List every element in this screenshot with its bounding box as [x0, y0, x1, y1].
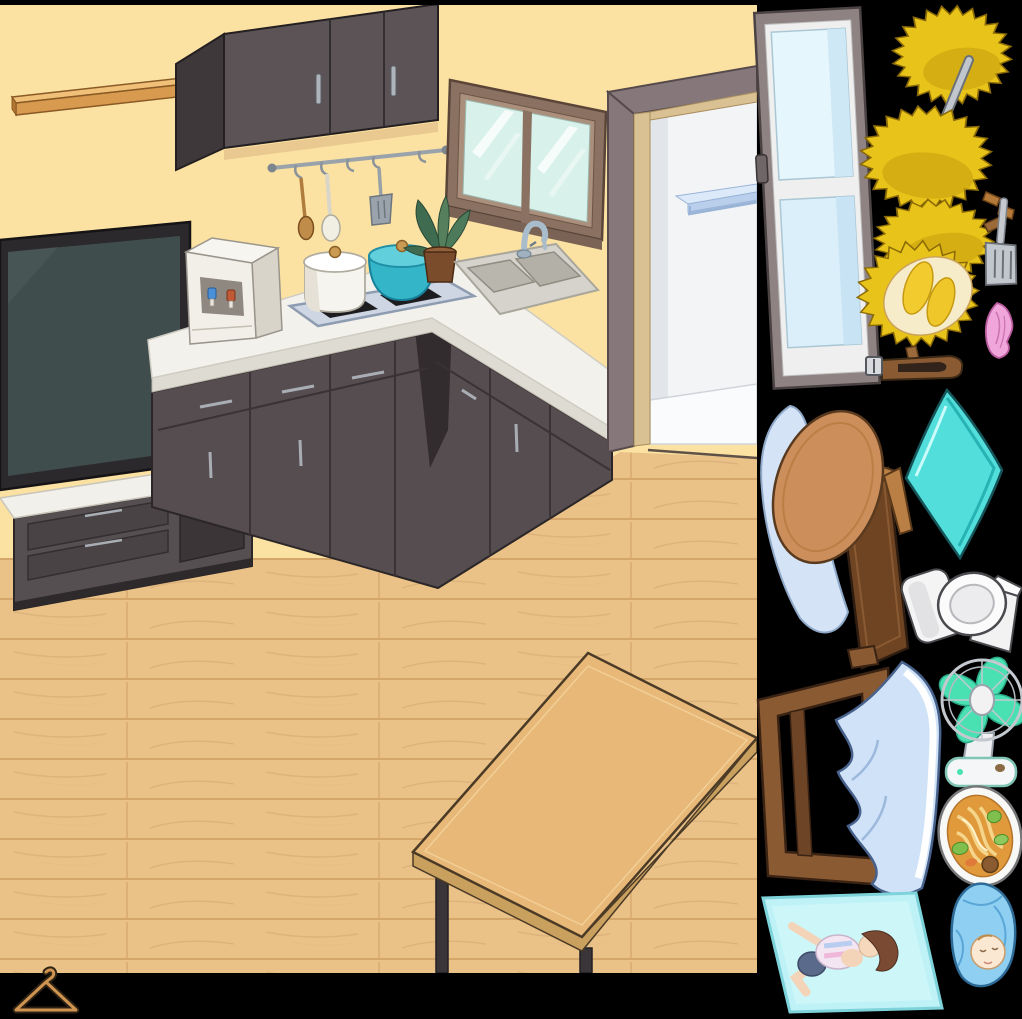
cabinet-handle	[316, 74, 321, 104]
doorway	[608, 66, 757, 452]
room-scene	[0, 4, 757, 973]
exercise-mat[interactable]	[763, 893, 942, 1012]
water-dispenser	[186, 238, 282, 344]
swaddled-baby[interactable]	[952, 884, 1016, 987]
table-leg	[580, 948, 592, 973]
pink-cloth[interactable]	[986, 303, 1013, 358]
white-pot	[304, 247, 366, 313]
door-handle	[756, 155, 768, 184]
game-stage	[0, 0, 1022, 1019]
cabinet-handle	[391, 66, 396, 96]
